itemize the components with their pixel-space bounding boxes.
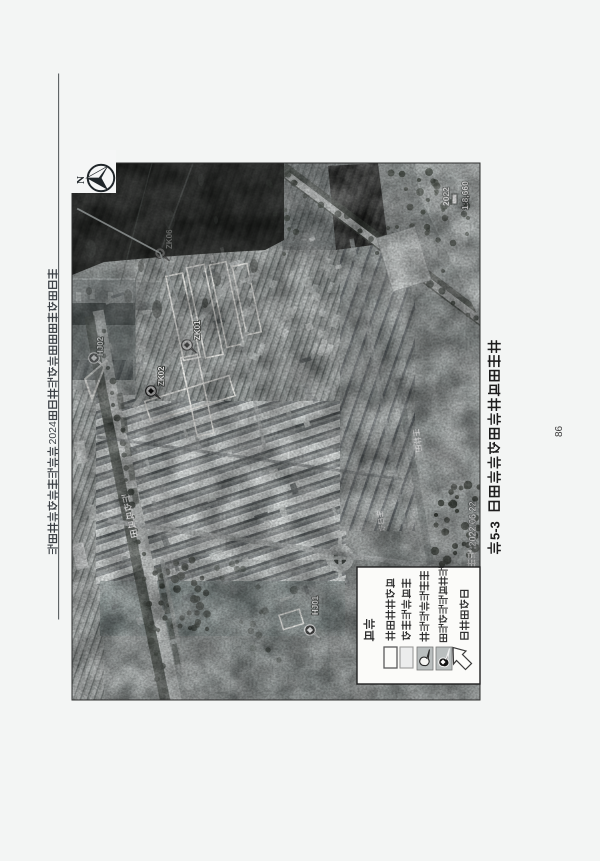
svg-text:5-3: 5-3 [488,521,503,540]
svg-text:86: 86 [554,425,565,437]
svg-text:2024: 2024 [47,421,59,445]
svg-text:N: N [75,176,87,184]
